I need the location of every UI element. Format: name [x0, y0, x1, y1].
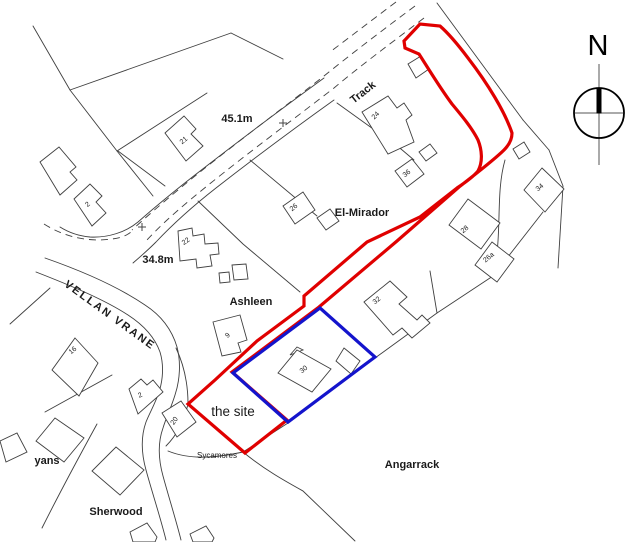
label-sycamores: Sycamores: [197, 451, 237, 460]
building-ashleen-outbuilding-2: [219, 272, 230, 283]
label-el-mirador: El-Mirador: [335, 207, 390, 219]
label-the-site: the site: [211, 404, 255, 419]
site-plan-page: 45.1mTrackEl-Mirador34.8mAshleenVELLAN V…: [0, 0, 640, 542]
label-yans: yans: [34, 455, 59, 467]
label-height-451: 45.1m: [221, 113, 252, 125]
label-sherwood: Sherwood: [89, 506, 142, 518]
label-ashleen: Ashleen: [230, 296, 273, 308]
building-ashleen-outbuilding-1: [232, 264, 248, 280]
site-plan-map: 45.1mTrackEl-Mirador34.8mAshleenVELLAN V…: [0, 0, 640, 542]
north-letter: N: [588, 30, 609, 62]
label-angarrack: Angarrack: [385, 459, 440, 471]
label-height-348: 34.8m: [142, 254, 173, 266]
compass-north-needle: [597, 89, 602, 114]
